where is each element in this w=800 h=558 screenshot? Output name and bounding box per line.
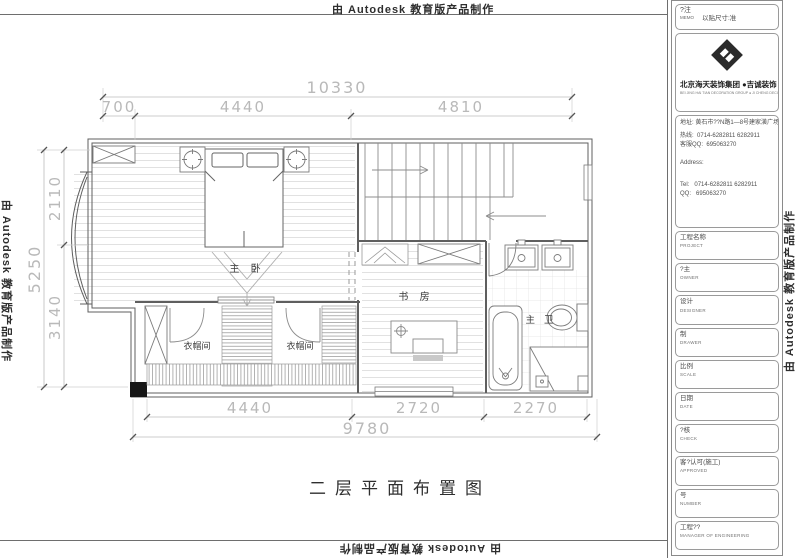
- field-number-en: NUMBER: [680, 501, 774, 506]
- field-scale: 比例 SCALE: [675, 360, 779, 389]
- dim-bottom-seg-3: 2270: [513, 399, 559, 417]
- field-owner-cn: ?主: [680, 266, 774, 274]
- wardrobes: [147, 306, 356, 386]
- field-approved: 客?认可(施工) APPROVED: [675, 456, 779, 485]
- field-approved-en: APPROVED: [680, 468, 774, 473]
- contact-box: 地址: 黄石市??N路1—8号建家潢广场 热线: 0714-6282811 62…: [675, 115, 779, 228]
- qq-en-label: QQ:: [680, 191, 691, 197]
- study-cabinet: [362, 244, 408, 265]
- field-drawer-cn: 制: [680, 331, 774, 339]
- dim-left-seg-2: 3140: [46, 294, 64, 340]
- memo-label-en: MEMO: [680, 15, 694, 20]
- right-wall-window: [584, 165, 592, 200]
- dim-top-total: 10330: [307, 78, 368, 97]
- memo-box: ?注 MEMO 以贴尺寸:准: [675, 4, 779, 30]
- dim-bottom-total: 9780: [343, 419, 392, 438]
- field-drawer-en: DRAWER: [680, 340, 774, 345]
- qq-label: 客服QQ:: [680, 142, 703, 148]
- company-name: 北京海天装饰集团 ●吉诚装饰: [680, 79, 774, 90]
- memo-note: 以贴尺寸:准: [702, 12, 736, 22]
- field-check: ?核 CHECK: [675, 424, 779, 453]
- room-label-master-bedroom: 主 卧: [229, 262, 264, 275]
- hotline-value: 0714-6282811 6282911: [697, 133, 760, 139]
- field-owner-en: OWNER: [680, 275, 774, 280]
- memo-label-cn: ?注: [680, 7, 694, 15]
- hotline-label: 热线:: [680, 133, 694, 139]
- dim-left-seg-1: 2110: [46, 175, 64, 221]
- field-project-cn: 工程名称: [680, 234, 774, 242]
- field-date-en: DATE: [680, 404, 774, 409]
- field-scale-cn: 比例: [680, 363, 774, 371]
- bed: [205, 149, 283, 247]
- toilet-tank: [577, 304, 588, 331]
- tel-value: 0714-6282811 6282911: [694, 182, 757, 188]
- qq-en-value: 695063270: [696, 191, 726, 197]
- corner-column-solid: [130, 382, 147, 397]
- stair-arrow-down: [486, 212, 546, 220]
- dim-left-total: 5250: [25, 245, 44, 294]
- dim-top-seg-1: 700: [102, 98, 137, 116]
- field-project: 工程名称 PROJECT: [675, 231, 779, 260]
- dim-top-seg-2: 4440: [220, 98, 266, 116]
- field-number: 号 NUMBER: [675, 489, 779, 518]
- room-label-master-bath: 主 卫: [525, 314, 556, 326]
- field-date-cn: 日期: [680, 395, 774, 403]
- drawing-title: 二层平面布置图: [295, 474, 505, 499]
- room-label-study: 书 房: [398, 290, 433, 303]
- sliding-door: [218, 297, 274, 303]
- tel-label: Tel:: [680, 182, 689, 188]
- field-manager: 工程?? MANAGER OF ENGINEERING: [675, 521, 779, 550]
- field-scale-en: SCALE: [680, 372, 774, 377]
- field-owner: ?主 OWNER: [675, 263, 779, 292]
- qq-value: 695063270: [706, 142, 736, 148]
- dim-bottom-seg-2: 2720: [396, 399, 442, 417]
- room-label-cloakroom-right: 衣帽间: [286, 340, 313, 352]
- company-name-en: BEI JING HAI TIAN DECORATION GROUP ● JI …: [680, 91, 774, 95]
- field-project-en: PROJECT: [680, 243, 774, 248]
- staircase: [365, 143, 546, 240]
- study-window: [375, 387, 453, 396]
- field-check-cn: ?核: [680, 427, 774, 435]
- title-block-panel: ?注 MEMO 以贴尺寸:准 北京海天装饰集团 ●吉诚装饰 BEI JING H…: [671, 0, 783, 556]
- field-designer-en: DESIGNER: [680, 308, 774, 313]
- dim-bottom-seg-1: 4440: [227, 399, 273, 417]
- edu-stamp-right: 由 Autodesk 教育版产品制作: [781, 191, 797, 391]
- address-en-label: Address:: [680, 159, 774, 168]
- field-designer: 设计 DESIGNER: [675, 295, 779, 324]
- dim-top-seg-3: 4810: [438, 98, 484, 116]
- address-value: 黄石市??N路1—8号建家潢广场: [695, 120, 779, 126]
- field-approved-cn: 客?认可(施工): [680, 459, 774, 467]
- address-label: 地址:: [680, 120, 694, 126]
- brand-box: 北京海天装饰集团 ●吉诚装饰 BEI JING HAI TIAN DECORAT…: [675, 33, 779, 112]
- company-logo-icon: [709, 37, 745, 73]
- cad-floorplan-page: { "stamp": { "text": "由 Autodesk 教育版产品制作…: [0, 0, 800, 558]
- field-check-en: CHECK: [680, 436, 774, 441]
- field-drawer: 制 DRAWER: [675, 328, 779, 357]
- room-label-cloakroom-left: 衣帽间: [183, 340, 210, 352]
- field-date: 日期 DATE: [675, 392, 779, 421]
- field-designer-cn: 设计: [680, 298, 774, 306]
- field-number-cn: 号: [680, 492, 774, 500]
- field-manager-cn: 工程??: [680, 524, 774, 532]
- field-manager-en: MANAGER OF ENGINEERING: [680, 533, 774, 538]
